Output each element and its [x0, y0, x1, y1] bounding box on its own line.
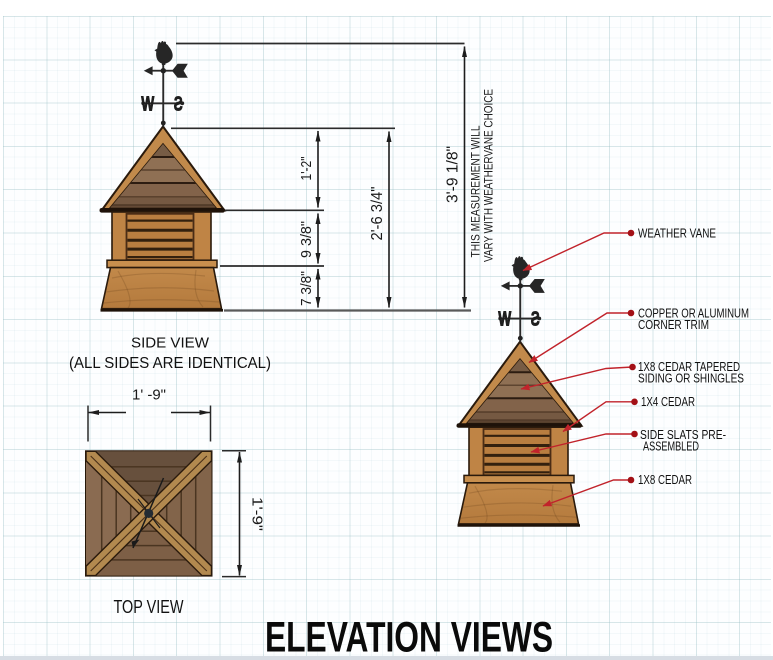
svg-text:1X8 CEDAR: 1X8 CEDAR [638, 473, 692, 487]
svg-text:ASSEMBLED: ASSEMBLED [643, 440, 699, 454]
svg-text:WEATHER VANE: WEATHER VANE [638, 227, 716, 241]
svg-text:1' -9": 1' -9" [132, 387, 166, 404]
svg-text:(ALL SIDES ARE IDENTICAL): (ALL SIDES ARE IDENTICAL) [69, 355, 271, 372]
svg-text:S: S [531, 309, 540, 331]
svg-text:THIS MEASUREMENT WILL: THIS MEASUREMENT WILL [469, 125, 483, 257]
svg-text:SIDING OR SHINGLES: SIDING OR SHINGLES [638, 372, 744, 386]
svg-text:CORNER TRIM: CORNER TRIM [638, 318, 709, 332]
svg-text:1X4 CEDAR: 1X4 CEDAR [641, 395, 695, 409]
svg-text:1'-2": 1'-2" [298, 157, 315, 181]
svg-text:9 3/8": 9 3/8" [298, 221, 315, 258]
svg-text:TOP VIEW: TOP VIEW [114, 596, 184, 617]
svg-text:3'-9 1/8": 3'-9 1/8" [445, 146, 462, 203]
svg-text:SIDE VIEW: SIDE VIEW [131, 336, 209, 352]
svg-text:1'-9": 1'-9" [249, 497, 266, 531]
svg-text:S: S [174, 93, 183, 115]
svg-text:7 3/8": 7 3/8" [298, 271, 315, 306]
svg-text:W: W [498, 309, 511, 331]
svg-text:2'-6 3/4": 2'-6 3/4" [369, 187, 386, 241]
svg-text:W: W [141, 94, 154, 116]
svg-text:ELEVATION VIEWS: ELEVATION VIEWS [265, 614, 553, 660]
svg-text:VARY WITH WEATHERVANE CHOICE: VARY WITH WEATHERVANE CHOICE [482, 89, 496, 262]
